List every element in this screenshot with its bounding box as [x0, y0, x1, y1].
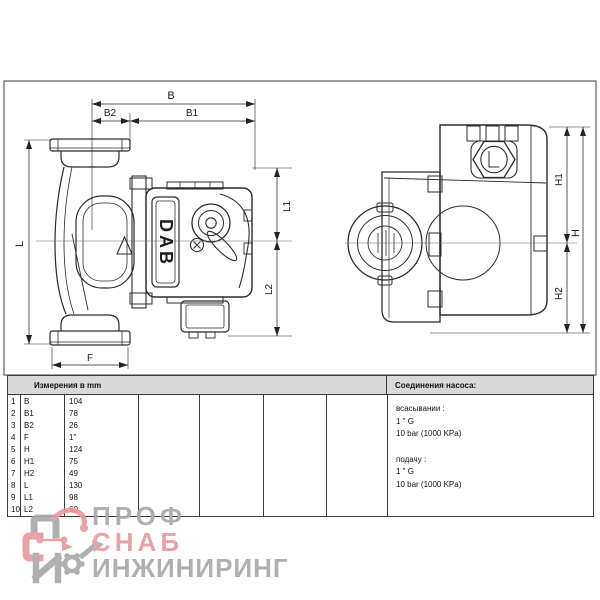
connections-header: Соединения насоса: [387, 376, 593, 394]
measurements-header: Измерения в mm [8, 376, 387, 394]
row-dim: L1 [24, 493, 33, 502]
knob-pointer [204, 228, 240, 264]
row-number: 4 [11, 433, 15, 442]
row-dim: B1 [24, 409, 34, 418]
row-number: 10 [11, 505, 20, 514]
table-row: 1 B 104 [8, 396, 387, 408]
dim-label-B1: B1 [186, 108, 199, 119]
control-knob [191, 204, 241, 264]
row-dim: L [24, 481, 28, 490]
suction-pressure: 10 bar (1000 KPa) [396, 428, 593, 441]
watermark-line3: ИНЖИНИРИНГ [92, 555, 289, 581]
discharge-label: подачу : [396, 454, 593, 467]
table-row: 6 H1 75 [8, 456, 387, 468]
dim-label-F: F [87, 353, 93, 364]
measurement-rows: 1 B 104 2 B1 78 3 B2 26 4 F 1" 5 H [8, 396, 387, 516]
row-number: 6 [11, 457, 15, 466]
flow-arrow-icon [117, 237, 132, 254]
row-value: 60 [69, 505, 78, 514]
table-row: 7 H2 49 [8, 468, 387, 480]
row-value: 78 [69, 409, 78, 418]
row-number: 5 [11, 445, 15, 454]
nameplate-tab [534, 236, 547, 251]
row-number: 7 [11, 469, 15, 478]
dim-label-H1: H1 [554, 173, 565, 186]
row-value: 26 [69, 421, 78, 430]
pump-body [55, 167, 134, 314]
row-value: 98 [69, 493, 78, 502]
table-row: 2 B1 78 [8, 408, 387, 420]
row-value: 104 [69, 397, 82, 406]
dim-label-L2: L2 [264, 283, 275, 295]
table-row: 9 L1 98 [8, 492, 387, 504]
discharge-pressure: 10 bar (1000 KPa) [396, 479, 593, 492]
top-flange [50, 139, 130, 167]
bottom-flange [50, 315, 130, 345]
table-row: 4 F 1" [8, 432, 387, 444]
row-value: 130 [69, 481, 82, 490]
table-row: 8 L 130 [8, 480, 387, 492]
row-number: 1 [11, 397, 15, 406]
dimensions-table: Измерения в mm Соединения насоса: 1 B 10… [7, 375, 594, 517]
dim-label-L: L [14, 241, 26, 247]
technical-drawing: B B2 B1 L F L1 L2 DAB [0, 0, 600, 380]
table-body: 1 B 104 2 B1 78 3 B2 26 4 F 1" 5 H [8, 395, 593, 516]
pump-housing-side [382, 172, 546, 322]
table-header-row: Измерения в mm Соединения насоса: [8, 376, 593, 395]
table-row: 3 B2 26 [8, 420, 387, 432]
row-value: 1" [69, 433, 76, 442]
vent-plug-hex [471, 141, 517, 178]
connections-panel: всасывании : 1 " G 10 bar (1000 KPa) под… [388, 395, 593, 516]
row-number: 2 [11, 409, 15, 418]
dim-label-H: H [570, 229, 582, 237]
row-dim: B2 [24, 421, 34, 430]
row-number: 9 [11, 493, 15, 502]
row-dim: H2 [24, 469, 34, 478]
row-dim: H1 [24, 457, 34, 466]
side-view-dim-labels: H1 H2 H [554, 173, 582, 300]
table-row: 10 L2 60 [8, 504, 387, 516]
motor-side [440, 125, 547, 315]
row-dim: F [24, 433, 29, 442]
suction-port [348, 203, 422, 285]
row-number: 3 [11, 421, 15, 430]
row-value: 49 [69, 469, 78, 478]
brand-dab-logo: DAB [156, 219, 176, 267]
table-row: 5 H 124 [8, 444, 387, 456]
dim-label-B2: B2 [104, 108, 117, 119]
suction-size: 1 " G [396, 416, 593, 429]
row-dim: L2 [24, 505, 33, 514]
dim-label-B: B [167, 90, 174, 102]
row-value: 124 [69, 445, 82, 454]
row-dim: H [24, 445, 30, 454]
side-view-dimensions [430, 127, 590, 333]
dim-label-L1: L1 [282, 200, 293, 212]
dim-label-H2: H2 [554, 287, 565, 300]
side-view [345, 125, 577, 322]
discharge-size: 1 " G [396, 466, 593, 479]
terminal-box [181, 301, 229, 338]
suction-label: всасывании : [396, 403, 593, 416]
spacer [396, 441, 593, 454]
row-number: 8 [11, 481, 15, 490]
watermark-line2: СНАБ [92, 529, 289, 555]
row-value: 75 [69, 457, 78, 466]
motor-adapter [130, 176, 152, 308]
row-dim: B [24, 397, 29, 406]
